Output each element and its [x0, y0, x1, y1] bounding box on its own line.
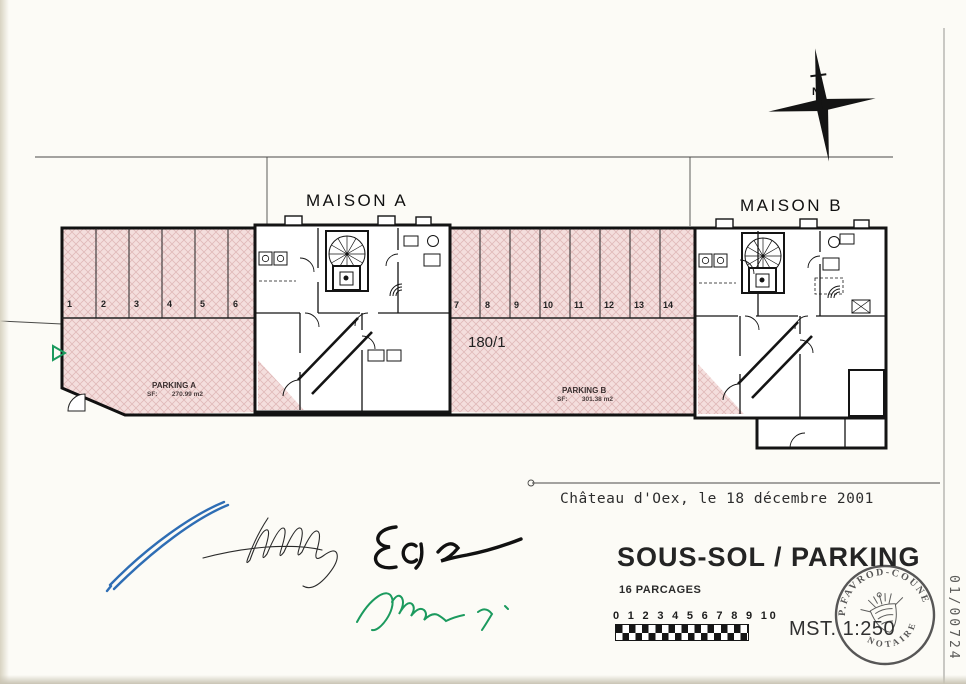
signature-green: [357, 593, 508, 630]
maison-b-label: MAISON B: [740, 196, 843, 216]
space-number: 11: [574, 300, 584, 310]
space-number: 8: [485, 300, 490, 310]
space-number: 3: [134, 299, 139, 309]
date-line: Château d'Oex, le 18 décembre 2001: [560, 491, 874, 507]
drawing-title: SOUS-SOL / PARKING: [617, 542, 921, 573]
parking-a-area: SF: 270.99 m2: [147, 391, 203, 398]
scan-edge-bottom: [0, 675, 966, 684]
scale-ruler-row-bottom: [616, 633, 748, 641]
space-number: 14: [663, 300, 673, 310]
archive-number: 01/00724: [946, 575, 961, 662]
space-number: 9: [514, 300, 519, 310]
space-number: 4: [167, 299, 172, 309]
signature-black-thin: [203, 518, 337, 588]
space-number: 6: [233, 299, 238, 309]
scale-text: MST. 1:250: [789, 618, 895, 641]
signatures: [107, 502, 521, 630]
north-label: N: [812, 86, 820, 98]
space-number: 13: [634, 300, 644, 310]
parcel-number-label: 180/1: [468, 334, 506, 351]
house-b-plan: [695, 219, 886, 448]
drawing-subtitle: 16 PARCAGES: [619, 584, 701, 596]
space-number: 2: [101, 299, 106, 309]
house-a-plan: [255, 216, 450, 412]
signature-blue: [107, 502, 228, 591]
space-number: 5: [200, 299, 205, 309]
scanned-plan-sheet: N P.FAVROD-COUNE NOTAIRE: [0, 0, 966, 684]
space-number: 12: [604, 300, 614, 310]
scale-ruler-row-top: [616, 625, 748, 633]
space-number: 1: [67, 299, 72, 309]
north-compass-icon: [761, 42, 882, 168]
parking-b-label: PARKING B: [562, 387, 606, 395]
scale-ruler-numbers: 0 1 2 3 4 5 6 7 8 9 10: [613, 610, 779, 622]
parking-b-area: SF: 301.38 m2: [557, 396, 613, 403]
space-number: 7: [454, 300, 459, 310]
parking-a-label: PARKING A: [152, 382, 196, 390]
maison-a-label: MAISON A: [306, 191, 408, 211]
signature-black-thick: [376, 527, 521, 568]
scale-ruler: [615, 624, 749, 641]
scan-edge-left: [0, 0, 9, 684]
space-number: 10: [543, 300, 553, 310]
